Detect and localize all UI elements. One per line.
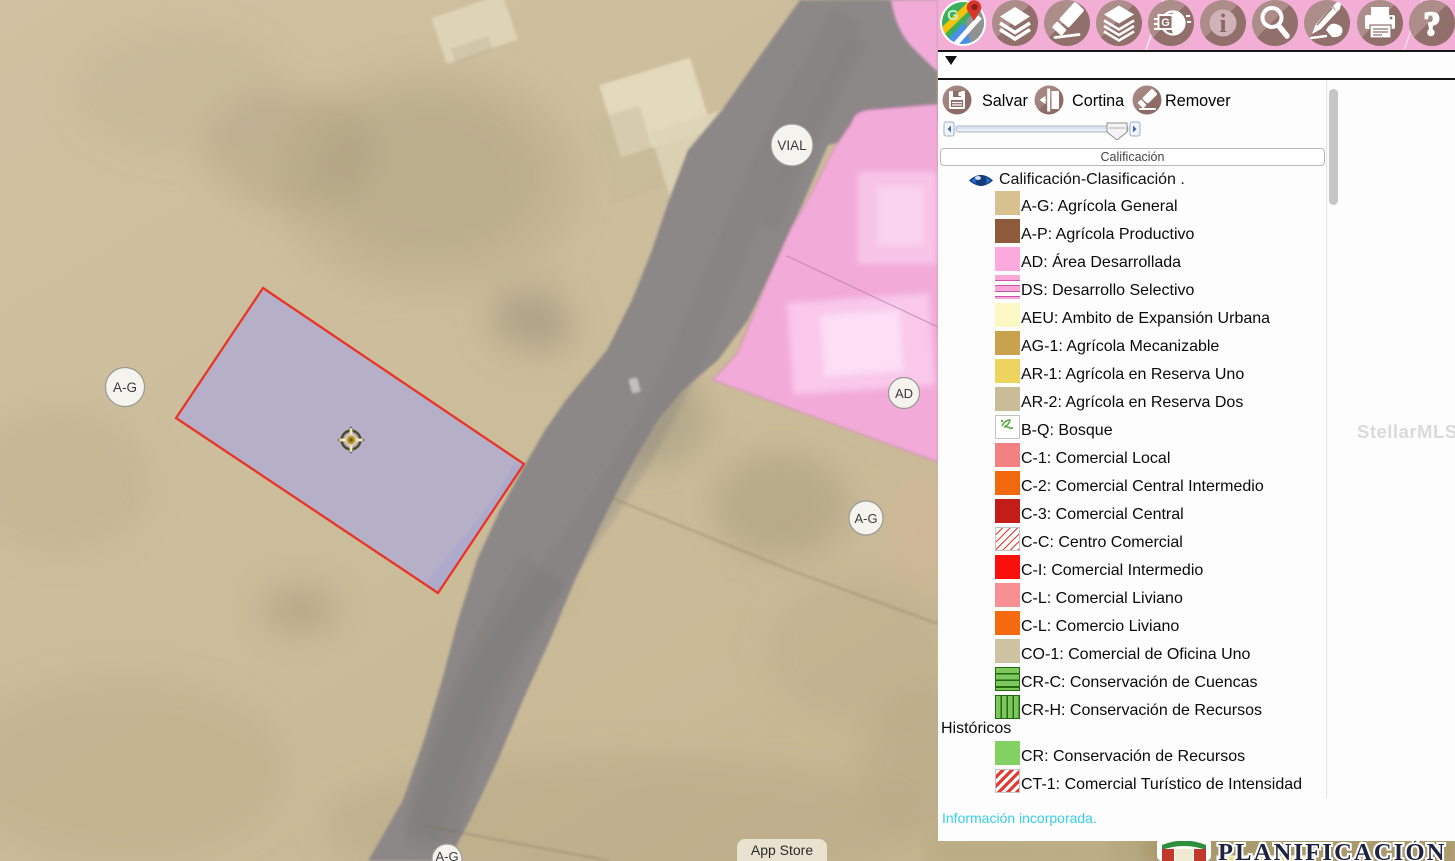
svg-text:?: ? <box>1424 6 1441 43</box>
svg-text:A-G: A-G <box>113 380 137 395</box>
svg-text:Cortina: Cortina <box>1072 92 1124 110</box>
svg-text:PLANIFICACIÓN: PLANIFICACIÓN <box>1218 838 1447 861</box>
svg-text:VIAL: VIAL <box>777 138 807 153</box>
svg-text:G: G <box>947 7 959 24</box>
svg-text:Salvar: Salvar <box>982 92 1028 110</box>
svg-text:AD: AD <box>895 386 913 401</box>
svg-text:A-G: A-G <box>854 511 877 526</box>
svg-text:Remover: Remover <box>1165 92 1231 110</box>
svg-text:i: i <box>1219 9 1226 38</box>
svg-text:G: G <box>1161 17 1170 29</box>
svg-text:A-G: A-G <box>435 849 458 861</box>
